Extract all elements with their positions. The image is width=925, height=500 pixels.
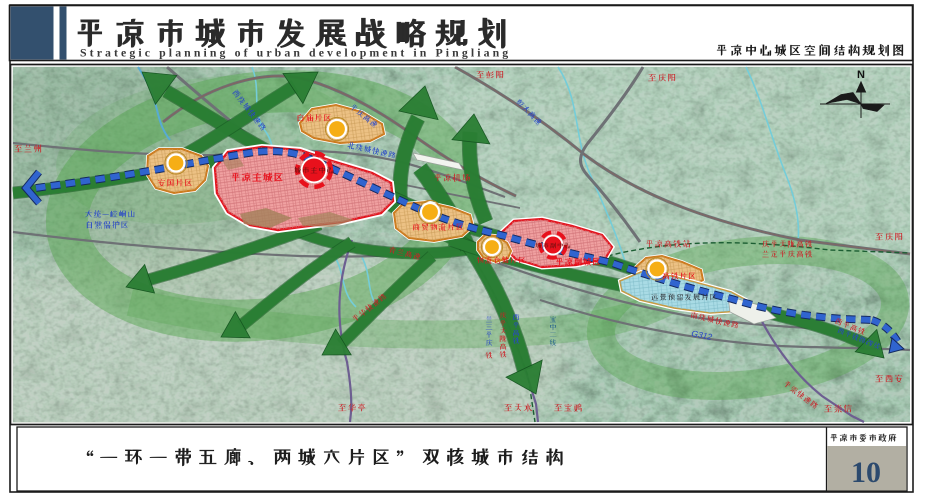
svg-text:10: 10 — [851, 456, 881, 489]
svg-text:Strategic planning of urban de: Strategic planning of urban development … — [80, 46, 511, 60]
svg-text:N: N — [857, 69, 865, 81]
